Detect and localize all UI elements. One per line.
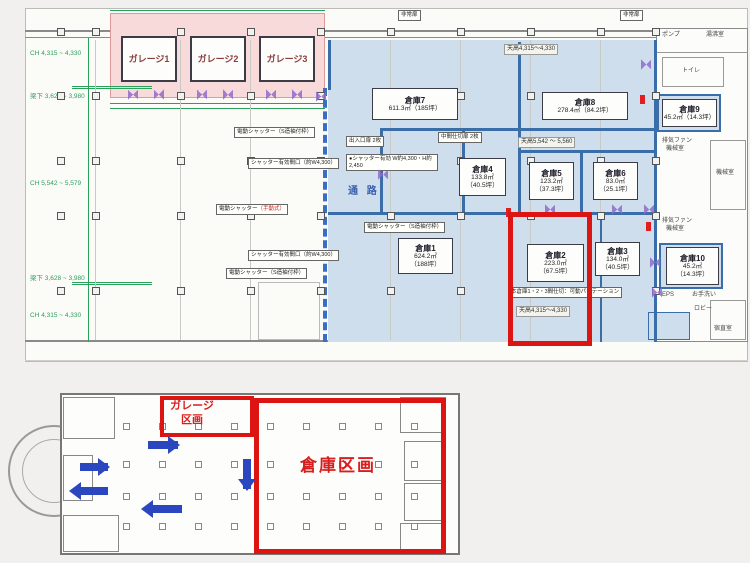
column-marker [195,523,202,530]
ceiling-label-4: 梁下 3,628 ~ 3,980 [30,272,85,282]
warehouse-1-box: 倉庫1 624.2㎡ （188坪） [398,238,453,274]
warehouse-9-area: 45.2㎡ [664,114,683,121]
warehouse-5-name: 倉庫5 [541,169,561,178]
door-swing-icon [197,88,207,101]
door-swing-icon [612,203,622,216]
warehouse-8-area: 278.4㎡ [558,107,581,114]
shutter-width-callout-2: シャッター有効間口（約W4,300） [248,250,339,261]
flow-arrow-left-1 [80,487,108,495]
warehouse-5-box: 倉庫5 123.2㎡ （37.3坪） [529,162,574,200]
garage-3-label: ガレージ3 [267,54,308,64]
garage-3-box: ガレージ3 [259,36,315,82]
garage-dim-line-1 [110,103,325,104]
flow-arrow-left-2 [152,505,182,513]
warehouse-8-box: 倉庫8 278.4㎡（84.2坪） [542,92,628,120]
ceiling-label-1: CH 4,315 ~ 4,330 [30,50,81,57]
column-marker [92,92,100,100]
column-marker [159,493,166,500]
column-marker [177,92,185,100]
warehouse-8-tsubo: （84.2坪） [580,107,612,114]
column-marker [527,28,535,36]
warehouse-6-box: 倉庫6 83.0㎡ （25.1坪） [593,162,638,200]
warehouse-10-tsubo: （14.3坪） [676,271,708,278]
shutter-frame-callout-1: 電動シャッター（S造袖付枠） [234,127,315,138]
column-marker [317,28,325,36]
height-note-mid: 天高5,542 ～ 5,560 [518,137,575,148]
warehouse-4-tsubo: （40.5坪） [466,182,498,189]
column-marker [247,92,255,100]
column-marker [652,92,660,100]
door-red-marker [646,222,651,231]
column-marker [92,157,100,165]
door-swing-icon [128,88,138,101]
hot-water-room-label: 湯沸室 [706,32,724,39]
warehouse-6-area: 83.0㎡ [606,178,625,185]
column-marker [457,28,465,36]
ceiling-label-5: CH 4,315 ~ 4,330 [30,312,81,319]
garage-1-label: ガレージ1 [129,54,170,64]
column-marker [231,493,238,500]
door-swing-icon [652,286,662,299]
warehouse-7-tsubo: （185坪） [411,105,441,112]
warehouse-7-area: 611.3㎡ [389,105,411,112]
toilet-label: トイレ [682,68,700,75]
machine-room-label-1: 機械室 [666,146,684,153]
warehouse-3-name: 倉庫3 [607,247,627,256]
shutter-frame-callout-3: 電動シャッター（S造袖付枠） [364,222,445,233]
machine-room-2 [710,300,746,340]
column-marker [57,92,65,100]
night-duty-room-label: 宿直室 [714,326,732,333]
flow-arrow-right-1 [148,441,178,449]
column-marker [457,287,465,295]
column-marker [57,157,65,165]
ground-line [25,360,748,361]
warehouse-4-name: 倉庫4 [472,165,492,174]
door-mid-callout: 中間仕切扉 2枚 [438,132,482,143]
shutter-manual-red-text: （手動式） [258,206,286,212]
emergency-door-callout-right: 非常扉 [620,10,643,21]
left-room-1 [63,397,115,439]
grid-line [95,40,96,340]
door-swing-icon [641,58,651,71]
door-red-marker [640,95,645,104]
machine-room-label-2: 機械室 [716,170,734,177]
exhaust-fan-label-2: 排気ファン [662,218,692,225]
column-marker [123,523,130,530]
wall-line [328,212,656,215]
column-marker [177,287,185,295]
grid-line [180,40,181,340]
stair-core [258,282,320,340]
warehouse-3-area: 134.0㎡ [606,256,629,263]
door-pair-callout: 出入口扉 2枚 [346,136,384,147]
column-marker [387,212,395,220]
ceiling-label-3: CH 5,542 ~ 5,579 [30,180,81,187]
shutter-width-callout-1: シャッター有効間口（約W4,300） [248,158,339,169]
door-swing-icon [292,88,302,101]
wall-line [328,40,331,90]
door-swing-icon [316,90,326,103]
warehouse-6-name: 倉庫6 [605,169,625,178]
wall-line [518,42,521,212]
column-marker [177,157,185,165]
column-marker [652,157,660,165]
warehouse-6-tsubo: （25.1坪） [599,186,631,193]
column-marker [317,212,325,220]
pump-room-label: ポンプ [662,32,680,39]
column-marker [247,28,255,36]
column-marker [231,523,238,530]
warehouse-1-area: 624.2㎡ [414,253,437,260]
height-note-top: 天高4,315～4,330 [504,44,558,55]
warehouse-8-name: 倉庫8 [575,98,595,107]
grid-line [390,40,391,340]
column-marker [92,212,100,220]
eps-label: EPS [662,292,674,299]
column-marker [159,461,166,468]
flow-arrow-down [243,459,251,489]
warehouse-zone-label: 倉庫区画 [300,451,376,476]
column-marker [57,287,65,295]
warehouse-9-name: 倉庫9 [679,105,699,114]
wall-line [580,150,583,215]
column-marker [652,28,660,36]
door-swing-icon [154,88,164,101]
flow-arrow-right-2 [80,463,108,471]
column-marker [92,28,100,36]
exhaust-fan-label-1: 排気ファン [662,138,692,145]
right-wing-divider-1 [656,52,748,53]
beam-tick-upper [72,86,152,89]
door-swing-icon [644,203,654,216]
door-swing-icon [650,256,660,269]
column-marker [597,28,605,36]
warehouse-7-box: 倉庫7 611.3㎡（185坪） [372,88,458,120]
grid-line [250,40,251,340]
warehouse-9-box: 倉庫9 45.2㎡（14.3坪） [662,99,717,127]
column-marker [247,287,255,295]
warehouse-5-area: 123.2㎡ [540,178,563,185]
door-swing-icon [266,88,276,101]
wall-line [600,215,602,342]
warehouse-3-tsubo: （40.5坪） [601,264,633,271]
main-floor-plan: ガレージ1 ガレージ2 ガレージ3 CH 4,315 ~ 4,330 梁下 3,… [0,0,750,375]
garage-zone-label: ガレージ区画 [166,399,218,428]
warehouse-3-box: 倉庫3 134.0㎡ （40.5坪） [595,242,640,276]
warehouse-10-box: 倉庫10 45.2㎡ （14.3坪） [666,247,719,285]
shutter-manual-callout: 電動シャッター（手動式） [216,204,288,215]
emergency-door-callout-left: 非常扉 [398,10,421,21]
warehouse-10-area: 45.2㎡ [683,263,702,270]
column-marker [195,493,202,500]
warehouse-4-area: 133.8㎡ [471,174,494,181]
door-swing-icon [223,88,233,101]
warehouse2-highlight-rect [508,212,592,346]
garage-2-box: ガレージ2 [190,36,246,82]
floor-plan-sheet: ガレージ1 ガレージ2 ガレージ3 CH 4,315 ~ 4,330 梁下 3,… [0,0,750,563]
garage-1-box: ガレージ1 [121,36,177,82]
column-marker [387,287,395,295]
column-marker [231,461,238,468]
door-swing-icon [378,168,388,181]
beam-tick-lower [72,282,152,285]
warehouse-1-name: 倉庫1 [415,244,435,253]
warehouse-1-tsubo: （188坪） [410,261,440,268]
column-marker [457,92,465,100]
corridor-label: 通 路 [348,182,380,197]
column-marker [597,212,605,220]
column-marker [123,493,130,500]
garage-top-dim-line [110,10,325,11]
column-marker [527,92,535,100]
column-marker [457,212,465,220]
left-dim-line [88,38,89,342]
column-marker [123,461,130,468]
overview-key-plan: ガレージ区画 倉庫区画 [0,375,750,563]
garage-dim-line-2 [110,108,325,109]
column-marker [123,423,130,430]
machine-room-label-3: 機械室 [666,226,684,233]
warehouse-4-box: 倉庫4 133.8㎡ （40.5坪） [459,158,506,196]
left-room-3 [63,515,119,552]
column-marker [92,287,100,295]
warehouse-9-tsubo: （14.3坪） [683,114,715,121]
column-marker [57,28,65,36]
column-marker [195,461,202,468]
warehouse-10-name: 倉庫10 [680,254,705,263]
column-marker [387,28,395,36]
column-marker [57,212,65,220]
wall-line [518,150,656,153]
column-marker [317,287,325,295]
column-marker [177,212,185,220]
shutter-manual-text: 電動シャッター [219,206,258,212]
warehouse-7-name: 倉庫7 [405,96,425,105]
warehouse-5-tsubo: （37.3坪） [535,186,567,193]
shutter-spec-callout: ●シャッター有効 W約4,300・H約2,450 [346,154,438,171]
garage-2-label: ガレージ2 [198,54,239,64]
shutter-frame-callout-2: 電動シャッター（S造袖付枠） [226,268,307,279]
washroom-label: お手洗い [692,292,716,299]
column-marker [159,523,166,530]
column-marker [177,28,185,36]
warehouse-zone-rect [254,398,446,554]
lobby-label: ロビー [694,306,712,313]
